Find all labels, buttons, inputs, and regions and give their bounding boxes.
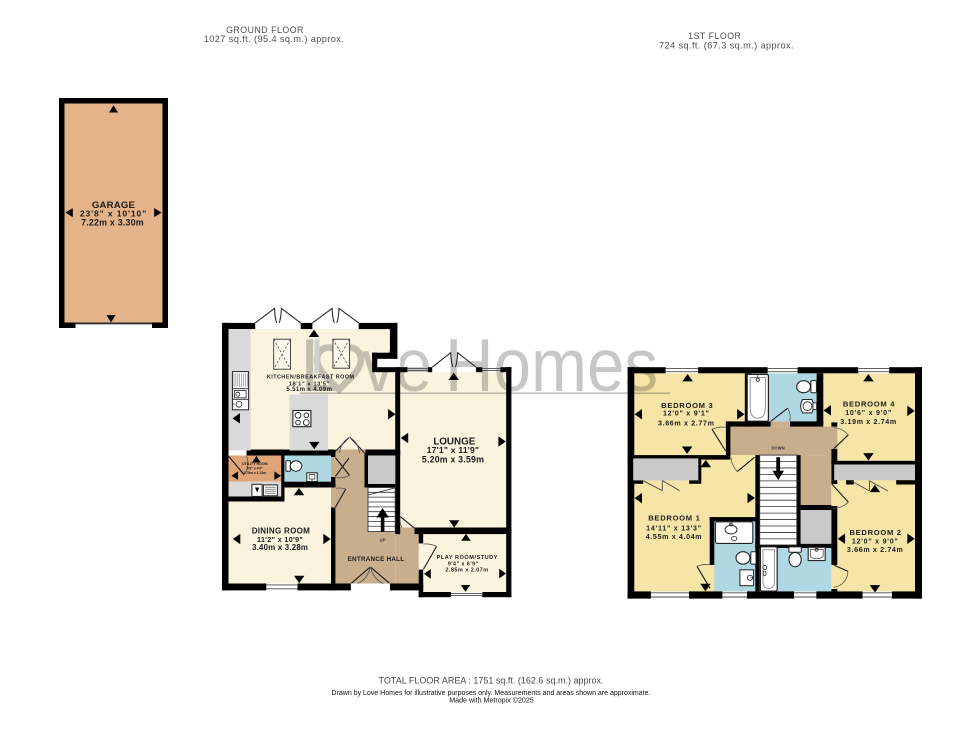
svg-text:1.75m x 1.23m: 1.75m x 1.23m bbox=[243, 471, 266, 475]
svg-text:5.51m x 4.09m: 5.51m x 4.09m bbox=[286, 386, 332, 393]
svg-text:BEDROOM 1: BEDROOM 1 bbox=[648, 514, 700, 523]
svg-text:DOWN: DOWN bbox=[771, 446, 784, 451]
svg-text:7.22m x 3.30m: 7.22m x 3.30m bbox=[81, 218, 144, 228]
svg-text:PLAY ROOM/STUDY: PLAY ROOM/STUDY bbox=[437, 555, 498, 561]
svg-text:1027 sq.ft. (95.4 sq.m.) appro: 1027 sq.ft. (95.4 sq.m.) approx. bbox=[204, 34, 344, 44]
svg-text:4.55m x 4.04m: 4.55m x 4.04m bbox=[646, 533, 703, 541]
svg-text:12'0" x 9'1": 12'0" x 9'1" bbox=[663, 410, 710, 418]
svg-text:Homes: Homes bbox=[445, 323, 658, 407]
svg-text:KITCHEN/BREAKFAST ROOM: KITCHEN/BREAKFAST ROOM bbox=[267, 375, 355, 381]
svg-text:BEDROOM 4: BEDROOM 4 bbox=[843, 399, 895, 408]
svg-text:14'11" x 13'3": 14'11" x 13'3" bbox=[646, 524, 702, 532]
svg-text:12'0" x 9'0": 12'0" x 9'0" bbox=[852, 537, 899, 545]
svg-text:10'6" x 9'0": 10'6" x 9'0" bbox=[845, 409, 892, 417]
svg-text:ENTRANCE HALL: ENTRANCE HALL bbox=[348, 556, 405, 563]
svg-text:3.19m x 2.74m: 3.19m x 2.74m bbox=[840, 418, 897, 426]
svg-text:5.20m x 3.59m: 5.20m x 3.59m bbox=[422, 454, 484, 464]
svg-text:UP: UP bbox=[380, 538, 386, 543]
svg-text:UTILITY ROOM: UTILITY ROOM bbox=[242, 462, 268, 466]
svg-text:3.66m x 2.77m: 3.66m x 2.77m bbox=[658, 419, 715, 427]
svg-text:Made with Metropix ©2025: Made with Metropix ©2025 bbox=[449, 697, 534, 705]
svg-text:2.85m x 2.07m: 2.85m x 2.07m bbox=[445, 567, 488, 573]
svg-text:724 sq.ft. (67.3 sq.m.) approx: 724 sq.ft. (67.3 sq.m.) approx. bbox=[659, 40, 794, 50]
svg-text:TOTAL FLOOR AREA : 1751 sq.ft.: TOTAL FLOOR AREA : 1751 sq.ft. (162.6 sq… bbox=[379, 675, 604, 685]
svg-text:BEDROOM 2: BEDROOM 2 bbox=[849, 528, 901, 537]
svg-text:3.66m x 2.74m: 3.66m x 2.74m bbox=[847, 546, 904, 554]
svg-text:5'9" x 4'0": 5'9" x 4'0" bbox=[247, 466, 264, 470]
svg-text:BEDROOM 3: BEDROOM 3 bbox=[661, 401, 713, 410]
svg-text:3.40m x 3.28m: 3.40m x 3.28m bbox=[252, 543, 308, 552]
